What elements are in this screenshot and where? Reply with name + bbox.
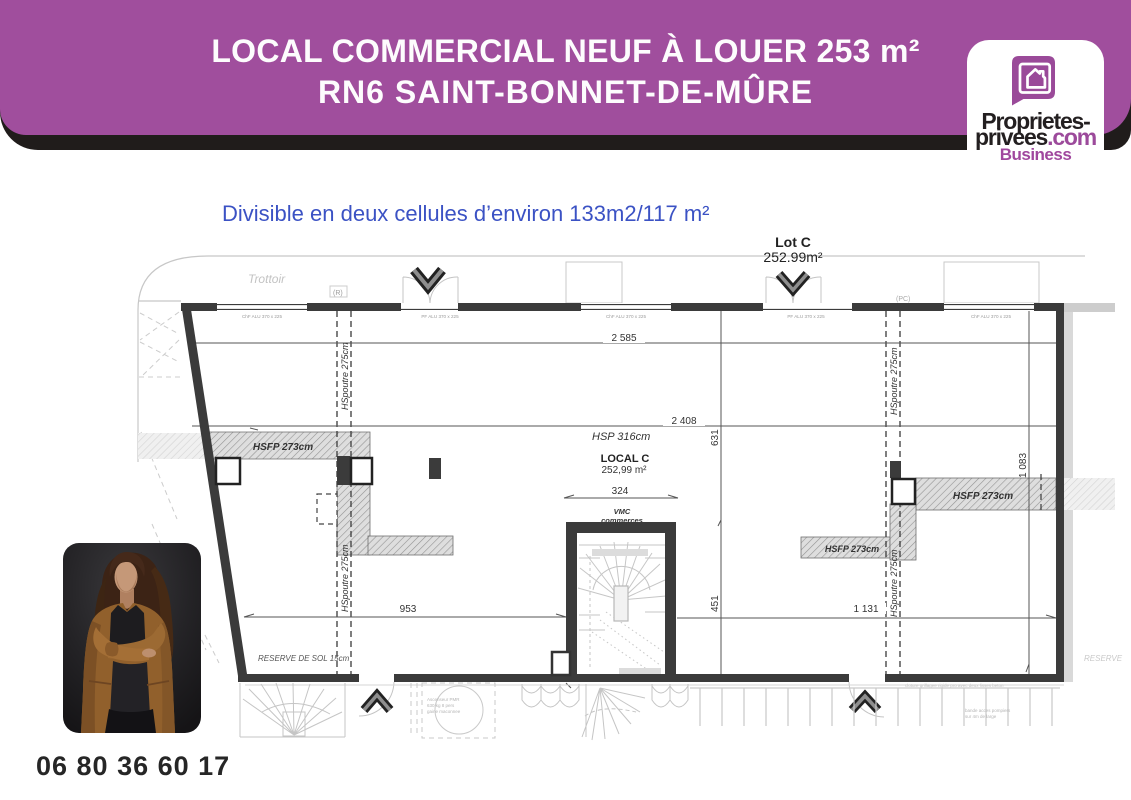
svg-text:HSP 316cm: HSP 316cm — [592, 431, 650, 443]
svg-text:HSpoutre 275cm: HSpoutre 275cm — [340, 544, 350, 612]
svg-text:2 408: 2 408 — [671, 416, 696, 427]
svg-text:gaine maconnee: gaine maconnee — [427, 709, 461, 714]
svg-text:RESERVE DE SOL 15cm: RESERVE DE SOL 15cm — [258, 654, 350, 663]
svg-text:ChF ALU 370 x 225: ChF ALU 370 x 225 — [242, 314, 283, 319]
svg-text:Trottoir: Trottoir — [248, 272, 286, 286]
svg-text:(R): (R) — [333, 290, 343, 297]
svg-text:HSpoutre 275cm: HSpoutre 275cm — [340, 342, 350, 410]
svg-text:HSpoutre 275cm: HSpoutre 275cm — [889, 549, 899, 617]
svg-text:HSFP 273cm: HSFP 273cm — [253, 442, 313, 453]
svg-text:HSpoutre 275cm: HSpoutre 275cm — [889, 347, 899, 415]
svg-text:324: 324 — [612, 486, 629, 497]
svg-text:LOCAL C: LOCAL C — [601, 453, 650, 465]
svg-text:252.99m²: 252.99m² — [763, 249, 822, 265]
svg-text:PF ALU 370 x 225: PF ALU 370 x 225 — [787, 314, 825, 319]
svg-text:1 131: 1 131 — [853, 604, 878, 615]
svg-text:PF ALU 370 x 225: PF ALU 370 x 225 — [421, 314, 459, 319]
svg-text:HSFP 273cm: HSFP 273cm — [825, 544, 879, 554]
svg-text:Lot C: Lot C — [775, 234, 811, 250]
svg-text:HSFP 273cm: HSFP 273cm — [953, 491, 1013, 502]
svg-text:630 kg 8 pers: 630 kg 8 pers — [427, 703, 455, 708]
svg-text:1 083: 1 083 — [1018, 453, 1029, 478]
svg-text:ChF ALU 370 x 225: ChF ALU 370 x 225 — [971, 314, 1012, 319]
svg-text:252,99 m²: 252,99 m² — [601, 465, 647, 476]
svg-text:ChF ALU 370 x 225: ChF ALU 370 x 225 — [606, 314, 647, 319]
svg-text:RESERVE: RESERVE — [1084, 654, 1123, 663]
svg-text:451: 451 — [710, 595, 721, 612]
svg-text:Ascenseur PMR: Ascenseur PMR — [427, 697, 460, 702]
svg-text:cloture grillagee rigide pro a: cloture grillagee rigide pro avec deux l… — [905, 683, 1004, 688]
svg-text:sur 4m de large: sur 4m de large — [965, 714, 997, 719]
svg-text:953: 953 — [400, 604, 417, 615]
svg-text:bande acces pompiers: bande acces pompiers — [965, 708, 1011, 713]
svg-text:631: 631 — [710, 429, 721, 446]
svg-text:2 585: 2 585 — [611, 333, 636, 344]
svg-text:(PC): (PC) — [896, 296, 910, 303]
svg-text:VMC: VMC — [614, 507, 631, 516]
